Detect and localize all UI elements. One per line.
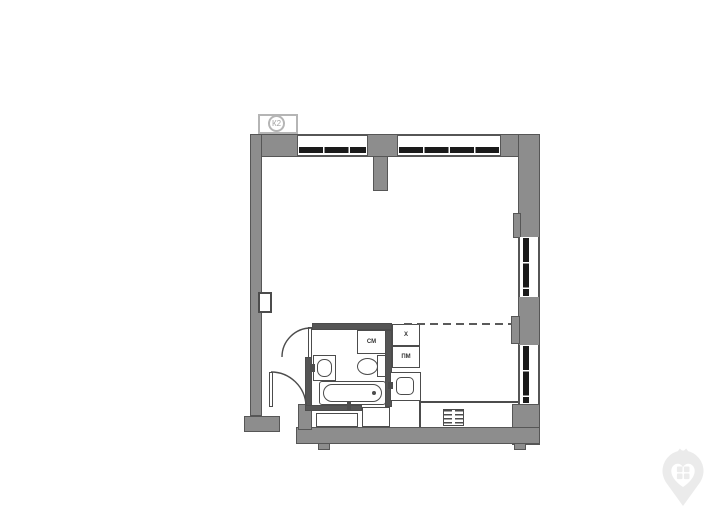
window-glazing	[299, 147, 366, 153]
wall-right-upper-tab	[513, 213, 521, 238]
window-glazing	[523, 238, 529, 296]
wall-right-pier	[518, 296, 540, 346]
riser-label: К2	[272, 119, 281, 128]
zone-dashed-line	[404, 323, 512, 325]
dishwasher-box: ПМ	[392, 346, 420, 368]
bath-sink-basin	[317, 359, 332, 377]
floor-plan-canvas: К2 СМ Х ПМ	[0, 0, 721, 516]
hall-cabinet-left	[316, 413, 358, 427]
window-right-lower	[518, 345, 540, 404]
window-glazing	[523, 346, 529, 403]
wall-bottom-notch-right	[514, 443, 526, 450]
watermark-logo-icon	[658, 446, 708, 508]
wall-top-stub	[373, 156, 388, 191]
bathtub-faucet	[347, 402, 351, 410]
entry-door-arc-icon	[271, 372, 306, 406]
bath-sink-faucet	[310, 364, 315, 372]
radiator-grille	[443, 409, 464, 426]
wall-bottom-notch-left	[318, 443, 330, 450]
bathroom-wall-bottom	[305, 405, 362, 411]
fridge-label: Х	[393, 325, 419, 345]
window-top-right	[398, 134, 500, 157]
window-glazing	[399, 147, 499, 153]
wall-top-pier	[367, 134, 398, 157]
wall-right-upper	[518, 134, 540, 238]
wall-bottom	[296, 427, 540, 444]
window-right-upper	[518, 237, 540, 297]
kitchen-counter-side	[419, 401, 421, 427]
fridge-box: Х	[392, 324, 420, 346]
washing-machine-box: СМ	[357, 330, 386, 354]
washing-machine-label: СМ	[358, 331, 385, 353]
bathroom-door-arc-icon	[282, 328, 311, 357]
window-top-left	[298, 134, 367, 157]
hall-cabinet-right	[362, 407, 390, 427]
bathtub-drain	[372, 391, 376, 395]
wall-left	[250, 134, 262, 416]
wall-left-foot	[244, 416, 280, 432]
bathroom-door-leaf	[308, 327, 312, 358]
entry-door-leaf	[269, 372, 273, 407]
bathroom-wall-top	[312, 323, 392, 330]
toilet-tank	[377, 355, 386, 377]
kitchen-counter-edge	[420, 401, 518, 403]
wall-niche-panel	[258, 292, 272, 313]
riser-tag-circle: К2	[268, 115, 285, 132]
kitchen-sink-basin	[396, 377, 414, 395]
dishwasher-label: ПМ	[393, 347, 419, 367]
toilet-bowl	[357, 358, 378, 375]
kitchen-sink-faucet	[388, 382, 393, 389]
wall-right-pier-tab	[511, 316, 520, 344]
